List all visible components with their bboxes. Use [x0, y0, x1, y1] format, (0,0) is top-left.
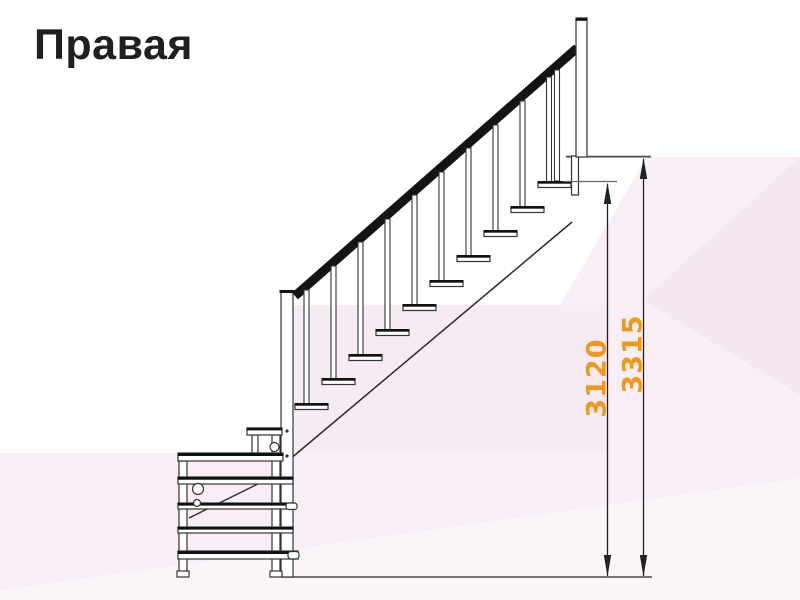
dimension-label-3120: 3120 — [582, 338, 613, 417]
tread — [511, 207, 545, 212]
background-shapes — [0, 157, 800, 600]
tread-platform — [178, 453, 284, 461]
baluster — [466, 148, 471, 257]
tread-end-cap — [286, 503, 297, 510]
tread — [457, 256, 491, 261]
tread-lower — [178, 527, 294, 533]
arrow-up-icon — [604, 183, 611, 205]
lower-mid-post-foot — [270, 571, 282, 577]
baluster — [412, 195, 417, 306]
tread — [295, 404, 329, 409]
bolt-circle — [193, 484, 204, 495]
tread — [538, 182, 572, 187]
tread-lower — [178, 551, 300, 559]
bolt-circle — [270, 443, 279, 452]
tread — [430, 281, 464, 286]
lower-left-post-foot — [177, 571, 189, 577]
baluster — [493, 125, 498, 232]
handrail — [295, 48, 577, 296]
baluster — [555, 70, 560, 181]
tread — [376, 330, 410, 335]
tread — [403, 305, 437, 310]
baluster — [547, 77, 552, 183]
bolt-dot — [285, 454, 288, 457]
baluster — [439, 172, 444, 282]
staircase-diagram: 3120 3315 — [0, 0, 800, 600]
tread — [349, 355, 383, 360]
bolt-dot — [285, 429, 288, 432]
bolt-circle — [194, 500, 201, 507]
tread — [484, 231, 518, 236]
small-tread-support — [252, 435, 258, 455]
tread-end-cap — [288, 552, 299, 560]
baluster — [358, 242, 363, 356]
dimension-label-3315: 3315 — [618, 314, 649, 393]
baluster — [304, 290, 309, 405]
baluster — [331, 266, 336, 380]
top-newel-post — [576, 18, 588, 157]
baluster — [385, 219, 390, 331]
tread — [322, 379, 356, 384]
tread-lower — [178, 477, 294, 484]
baluster — [520, 101, 525, 208]
tread-small — [247, 428, 283, 435]
landing-riser-board — [572, 156, 579, 195]
